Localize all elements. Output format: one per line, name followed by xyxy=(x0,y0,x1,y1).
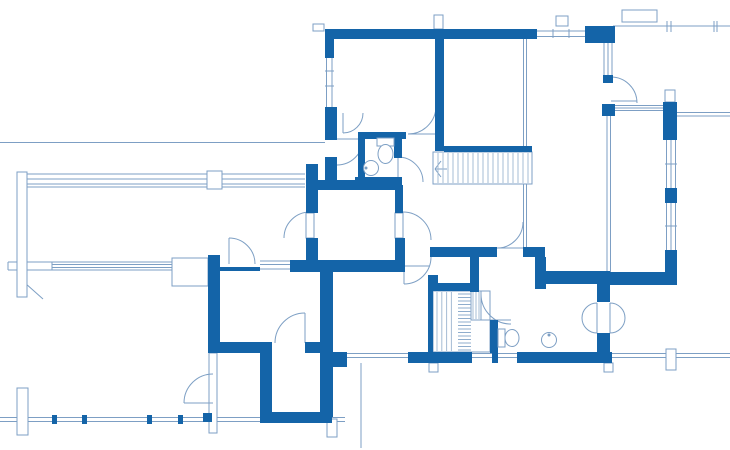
post-box xyxy=(306,213,314,238)
wall-segment xyxy=(597,284,610,302)
post-box xyxy=(313,24,324,31)
wall-segment xyxy=(665,188,677,203)
post-box xyxy=(665,90,675,102)
toilet-tank-icon xyxy=(498,329,505,347)
post-box xyxy=(666,349,676,370)
wall-segment xyxy=(408,352,472,363)
post-box xyxy=(207,171,222,189)
wall-segment xyxy=(435,31,444,151)
paper-background xyxy=(0,0,730,450)
wall-segment xyxy=(203,413,212,422)
wall-segment xyxy=(208,258,220,353)
wall-segment xyxy=(332,352,347,367)
wall-segment xyxy=(523,247,545,257)
wall-segment xyxy=(325,29,537,39)
wall-segment xyxy=(433,283,470,291)
wall-segment xyxy=(394,132,402,158)
wall-segment xyxy=(82,415,87,424)
post-box xyxy=(17,388,28,435)
post-box xyxy=(622,10,657,22)
wall-segment xyxy=(310,180,402,190)
wall-segment xyxy=(535,257,546,289)
wall-segment xyxy=(218,267,260,271)
wall-segment xyxy=(663,102,677,140)
wall-segment xyxy=(490,320,498,353)
wall-segment xyxy=(325,29,334,58)
toilet-bowl-icon xyxy=(505,330,519,347)
post-box xyxy=(556,16,568,26)
post-box xyxy=(172,258,208,286)
wall-segment xyxy=(395,185,403,213)
wall-segment xyxy=(492,352,498,363)
floor-plan-page xyxy=(0,0,730,450)
wall-segment xyxy=(444,146,532,152)
wall-segment xyxy=(260,412,332,423)
toilet-bowl-icon xyxy=(378,145,393,164)
sink-tap-icon xyxy=(548,334,551,337)
wall-segment xyxy=(290,260,403,272)
post-box xyxy=(604,363,613,372)
wall-segment xyxy=(517,352,612,363)
wall-segment xyxy=(665,250,677,285)
wall-segment xyxy=(52,415,57,424)
wall-segment xyxy=(545,271,610,284)
wall-segment xyxy=(147,415,152,424)
wall-segment xyxy=(178,415,183,424)
post-box xyxy=(434,15,443,29)
sink-tap-icon xyxy=(365,167,368,170)
floor-plan-canvas xyxy=(0,0,730,450)
wall-segment xyxy=(602,104,615,116)
wall-segment xyxy=(325,107,337,140)
post-box xyxy=(395,213,403,238)
wall-segment xyxy=(603,75,613,83)
wall-segment xyxy=(305,342,333,353)
post-box xyxy=(429,363,438,372)
wall-segment xyxy=(470,257,479,292)
wall-segment xyxy=(430,247,497,257)
wall-segment xyxy=(428,290,433,352)
wall-segment xyxy=(208,342,272,353)
wall-segment xyxy=(600,27,615,43)
post-box xyxy=(17,172,27,297)
